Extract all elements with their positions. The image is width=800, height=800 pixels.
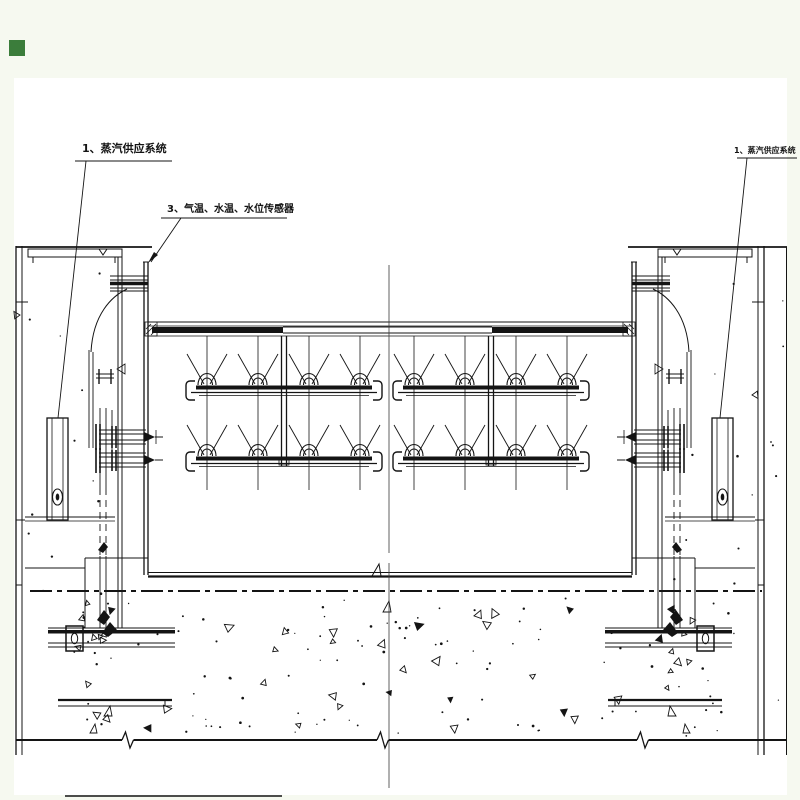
aggregate-mark [249, 725, 251, 727]
aggregate-mark [82, 616, 85, 619]
aggregate-mark [387, 623, 388, 624]
aggregate-mark [128, 603, 129, 604]
aggregate-mark [778, 699, 779, 700]
aggregate-mark [481, 699, 483, 701]
aggregate-mark [370, 625, 373, 628]
aggregate-mark [239, 721, 242, 724]
aggregate-mark [467, 718, 469, 720]
engineering-section-drawing: 1、蒸汽供应系统 3、气温、水温、水位传感器 1、蒸汽供应系统 [0, 0, 800, 800]
aggregate-mark [691, 454, 693, 456]
label-sensor-system: 3、气温、水温、水位传感器 [167, 202, 295, 215]
aggregate-mark [83, 627, 85, 629]
aggregate-mark [92, 480, 93, 481]
aggregate-mark [81, 389, 83, 391]
aggregate-mark [685, 539, 687, 541]
aggregate-mark [782, 345, 784, 347]
aggregate-mark [382, 651, 385, 654]
aggregate-mark [324, 616, 325, 617]
aggregate-mark [229, 677, 232, 680]
aggregate-mark [435, 644, 437, 646]
aggregate-mark [717, 730, 718, 731]
aggregate-mark [685, 735, 687, 737]
aggregate-mark [60, 335, 61, 336]
aggregate-mark [775, 475, 777, 477]
aggregate-mark [512, 643, 514, 645]
aggregate-mark [100, 592, 103, 595]
aggregate-mark [486, 668, 488, 670]
aggregate-mark [651, 665, 654, 668]
aggregate-mark [405, 627, 408, 630]
aggregate-mark [723, 498, 725, 500]
aggregate-mark [694, 726, 696, 728]
aggregate-mark [95, 663, 97, 665]
aggregate-mark [87, 703, 89, 705]
aggregate-mark [678, 686, 680, 688]
aggregate-mark [409, 625, 410, 626]
aggregate-mark [395, 621, 397, 623]
aggregate-mark [29, 319, 31, 321]
aggregate-mark [51, 555, 53, 557]
aggregate-mark [287, 629, 289, 631]
aggregate-mark [107, 603, 109, 605]
aggregate-mark [635, 711, 637, 713]
aggregate-mark [192, 715, 193, 716]
aggregate-mark [110, 658, 111, 659]
aggregate-mark [517, 724, 519, 726]
aggregate-mark [361, 645, 363, 647]
aggregate-mark [193, 693, 195, 695]
aggregate-mark [202, 618, 205, 621]
aggregate-mark [649, 644, 651, 646]
aggregate-mark [782, 300, 783, 301]
aggregate-mark [532, 725, 535, 728]
aggregate-mark [565, 597, 567, 599]
aggregate-mark [241, 697, 244, 700]
aggregate-mark [73, 651, 75, 653]
aggregate-mark [701, 667, 704, 670]
aggregate-mark [619, 647, 621, 649]
aggregate-mark [156, 633, 158, 635]
aggregate-mark [440, 642, 443, 645]
cad-drawing-page: 1、蒸汽供应系统 3、气温、水温、水位传感器 1、蒸汽供应系统 [0, 0, 800, 800]
aggregate-mark [397, 732, 398, 733]
aggregate-mark [772, 444, 774, 446]
aggregate-mark [737, 547, 739, 549]
aggregate-mark [297, 712, 299, 714]
aggregate-mark [42, 590, 44, 592]
aggregate-mark [316, 724, 317, 725]
aggregate-mark [357, 724, 359, 726]
aggregate-mark [736, 455, 739, 458]
aggregate-mark [97, 500, 99, 502]
aggregate-mark [441, 711, 443, 713]
aggregate-mark [137, 643, 139, 645]
aggregate-mark [456, 663, 458, 665]
aggregate-mark [489, 662, 491, 664]
label-steam-system-right: 1、蒸汽供应系统 [734, 145, 796, 155]
aggregate-mark [673, 578, 675, 580]
aggregate-mark [473, 650, 474, 651]
aggregate-mark [205, 719, 206, 720]
aggregate-mark [31, 513, 33, 515]
aggregate-mark [319, 635, 321, 637]
aggregate-mark [707, 680, 708, 681]
aggregate-mark [709, 695, 711, 697]
aggregate-mark [73, 440, 75, 442]
aggregate-mark [733, 633, 734, 634]
aggregate-mark [28, 533, 30, 535]
aggregate-mark [87, 641, 89, 643]
aggregate-mark [349, 720, 350, 721]
aggregate-mark [674, 609, 676, 611]
aggregate-mark [307, 648, 309, 650]
aggregate-mark [727, 612, 730, 615]
aggregate-mark [357, 640, 359, 642]
aggregate-mark [538, 729, 540, 731]
aggregate-mark [601, 717, 603, 719]
aggregate-mark [474, 609, 476, 611]
aggregate-mark [447, 640, 449, 642]
aggregate-mark [343, 600, 344, 601]
aggregate-mark [612, 710, 614, 712]
aggregate-mark [714, 373, 715, 374]
aggregate-mark [100, 723, 102, 725]
aggregate-mark [538, 639, 540, 641]
green-marker [9, 40, 25, 56]
aggregate-mark [219, 726, 221, 728]
aggregate-mark [322, 606, 324, 608]
aggregate-mark [404, 637, 406, 639]
aggregate-mark [720, 711, 723, 714]
aggregate-mark [540, 629, 542, 631]
aggregate-mark [712, 702, 714, 704]
aggregate-mark [519, 620, 521, 622]
aggregate-mark [713, 603, 715, 605]
aggregate-mark [82, 611, 84, 613]
aggregate-mark [86, 718, 88, 720]
aggregate-mark [294, 633, 295, 634]
aggregate-mark [417, 617, 419, 619]
aggregate-mark [320, 660, 321, 661]
aggregate-mark [99, 272, 101, 274]
aggregate-mark [752, 494, 753, 495]
aggregate-mark [288, 675, 290, 677]
aggregate-mark [203, 675, 205, 677]
aggregate-mark [705, 709, 707, 711]
label-steam-system-left: 1、蒸汽供应系统 [82, 141, 167, 155]
aggregate-mark [323, 719, 325, 721]
aggregate-mark [770, 441, 772, 443]
aggregate-mark [182, 615, 184, 617]
aggregate-mark [398, 627, 401, 630]
aggregate-mark [733, 582, 735, 584]
aggregate-mark [185, 731, 187, 733]
aggregate-mark [215, 640, 217, 642]
aggregate-mark [295, 731, 296, 732]
aggregate-mark [439, 607, 441, 609]
aggregate-mark [362, 683, 365, 686]
aggregate-mark [603, 662, 604, 663]
aggregate-mark [94, 652, 96, 654]
aggregate-mark [211, 725, 213, 727]
aggregate-mark [610, 632, 612, 634]
aggregate-mark [205, 725, 207, 727]
aggregate-mark [336, 659, 338, 661]
aggregate-mark [177, 630, 179, 632]
aggregate-mark [523, 607, 525, 609]
